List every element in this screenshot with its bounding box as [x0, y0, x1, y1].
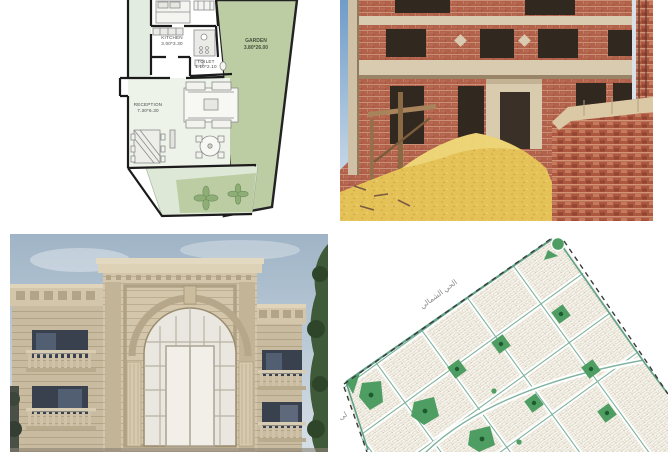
- site-plan-tile: الحي الشمالي لى: [336, 234, 668, 452]
- facade-render: [10, 234, 328, 452]
- brick-wall: [552, 97, 653, 221]
- svg-text:1.10*2.10: 1.10*2.10: [195, 64, 217, 69]
- svg-text:7.30*6.30: 7.30*6.30: [137, 108, 159, 113]
- sky-strip: [340, 0, 348, 170]
- central-bay: [96, 258, 264, 452]
- svg-text:3.00*3.30: 3.00*3.30: [161, 41, 183, 46]
- kitchen-label: KITCHEN: [161, 35, 183, 40]
- floor-plan-drawing: KITCHEN 3.00*3.30 GARDEN 3.80*26.00 TOIL…: [106, 0, 302, 226]
- listing-photo-collage: KITCHEN 3.00*3.30 GARDEN 3.80*26.00 TOIL…: [0, 0, 668, 452]
- construction-photo: [340, 0, 653, 221]
- reception-label: RECEPTION: [134, 102, 163, 107]
- street-name-label: الحي الشمالي: [418, 277, 459, 310]
- construction-photo-tile: [340, 0, 653, 221]
- map-edge-label: لى: [337, 410, 349, 422]
- site-plan-map: الحي الشمالي لى: [336, 234, 668, 452]
- facade-render-tile: [10, 234, 328, 452]
- floor-plan-tile: KITCHEN 3.00*3.30 GARDEN 3.80*26.00 TOIL…: [0, 0, 334, 226]
- garden-label: GARDEN: [245, 38, 267, 44]
- roundabout: [552, 238, 565, 251]
- svg-text:3.80*26.00: 3.80*26.00: [244, 45, 268, 51]
